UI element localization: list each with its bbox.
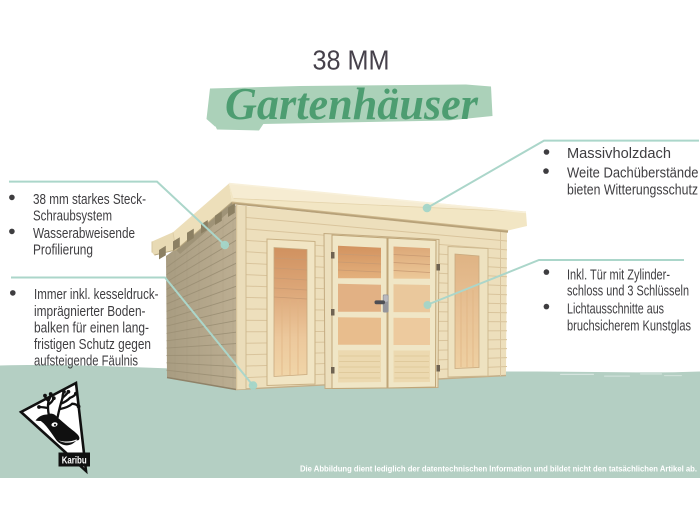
svg-text:balken für einen lang-: balken für einen lang- — [34, 320, 149, 337]
svg-text:fristigen Schutz gegen: fristigen Schutz gegen — [34, 336, 151, 353]
svg-text:Schraubsystem: Schraubsystem — [33, 207, 112, 224]
svg-text:Weite Dachüberstände: Weite Dachüberstände — [567, 165, 699, 182]
svg-text:Massivholzdach: Massivholzdach — [567, 145, 671, 162]
svg-text:Gartenhäuser: Gartenhäuser — [225, 78, 479, 129]
svg-text:38 MM: 38 MM — [313, 44, 390, 75]
svg-text:schloss und 3 Schlüsseln: schloss und 3 Schlüsseln — [567, 283, 689, 300]
svg-text:Karibu: Karibu — [62, 455, 87, 467]
svg-text:38 mm starkes Steck-: 38 mm starkes Steck- — [33, 191, 146, 208]
svg-text:Profilierung: Profilierung — [33, 241, 93, 258]
svg-text:Die Abbildung dient lediglich: Die Abbildung dient lediglich der datent… — [300, 464, 697, 473]
svg-text:bieten Witterungsschutz: bieten Witterungsschutz — [567, 181, 698, 198]
svg-text:Lichtausschnitte aus: Lichtausschnitte aus — [567, 301, 664, 318]
svg-text:aufsteigende Fäulnis: aufsteigende Fäulnis — [34, 353, 138, 370]
svg-text:Inkl. Tür mit Zylinder-: Inkl. Tür mit Zylinder- — [567, 267, 670, 284]
svg-text:Immer inkl. kesseldruck-: Immer inkl. kesseldruck- — [34, 286, 159, 303]
svg-text:imprägnierter Boden-: imprägnierter Boden- — [34, 303, 146, 320]
svg-text:bruchsicherem Kunstglas: bruchsicherem Kunstglas — [567, 317, 691, 334]
svg-text:Wasserabweisende: Wasserabweisende — [33, 225, 135, 242]
